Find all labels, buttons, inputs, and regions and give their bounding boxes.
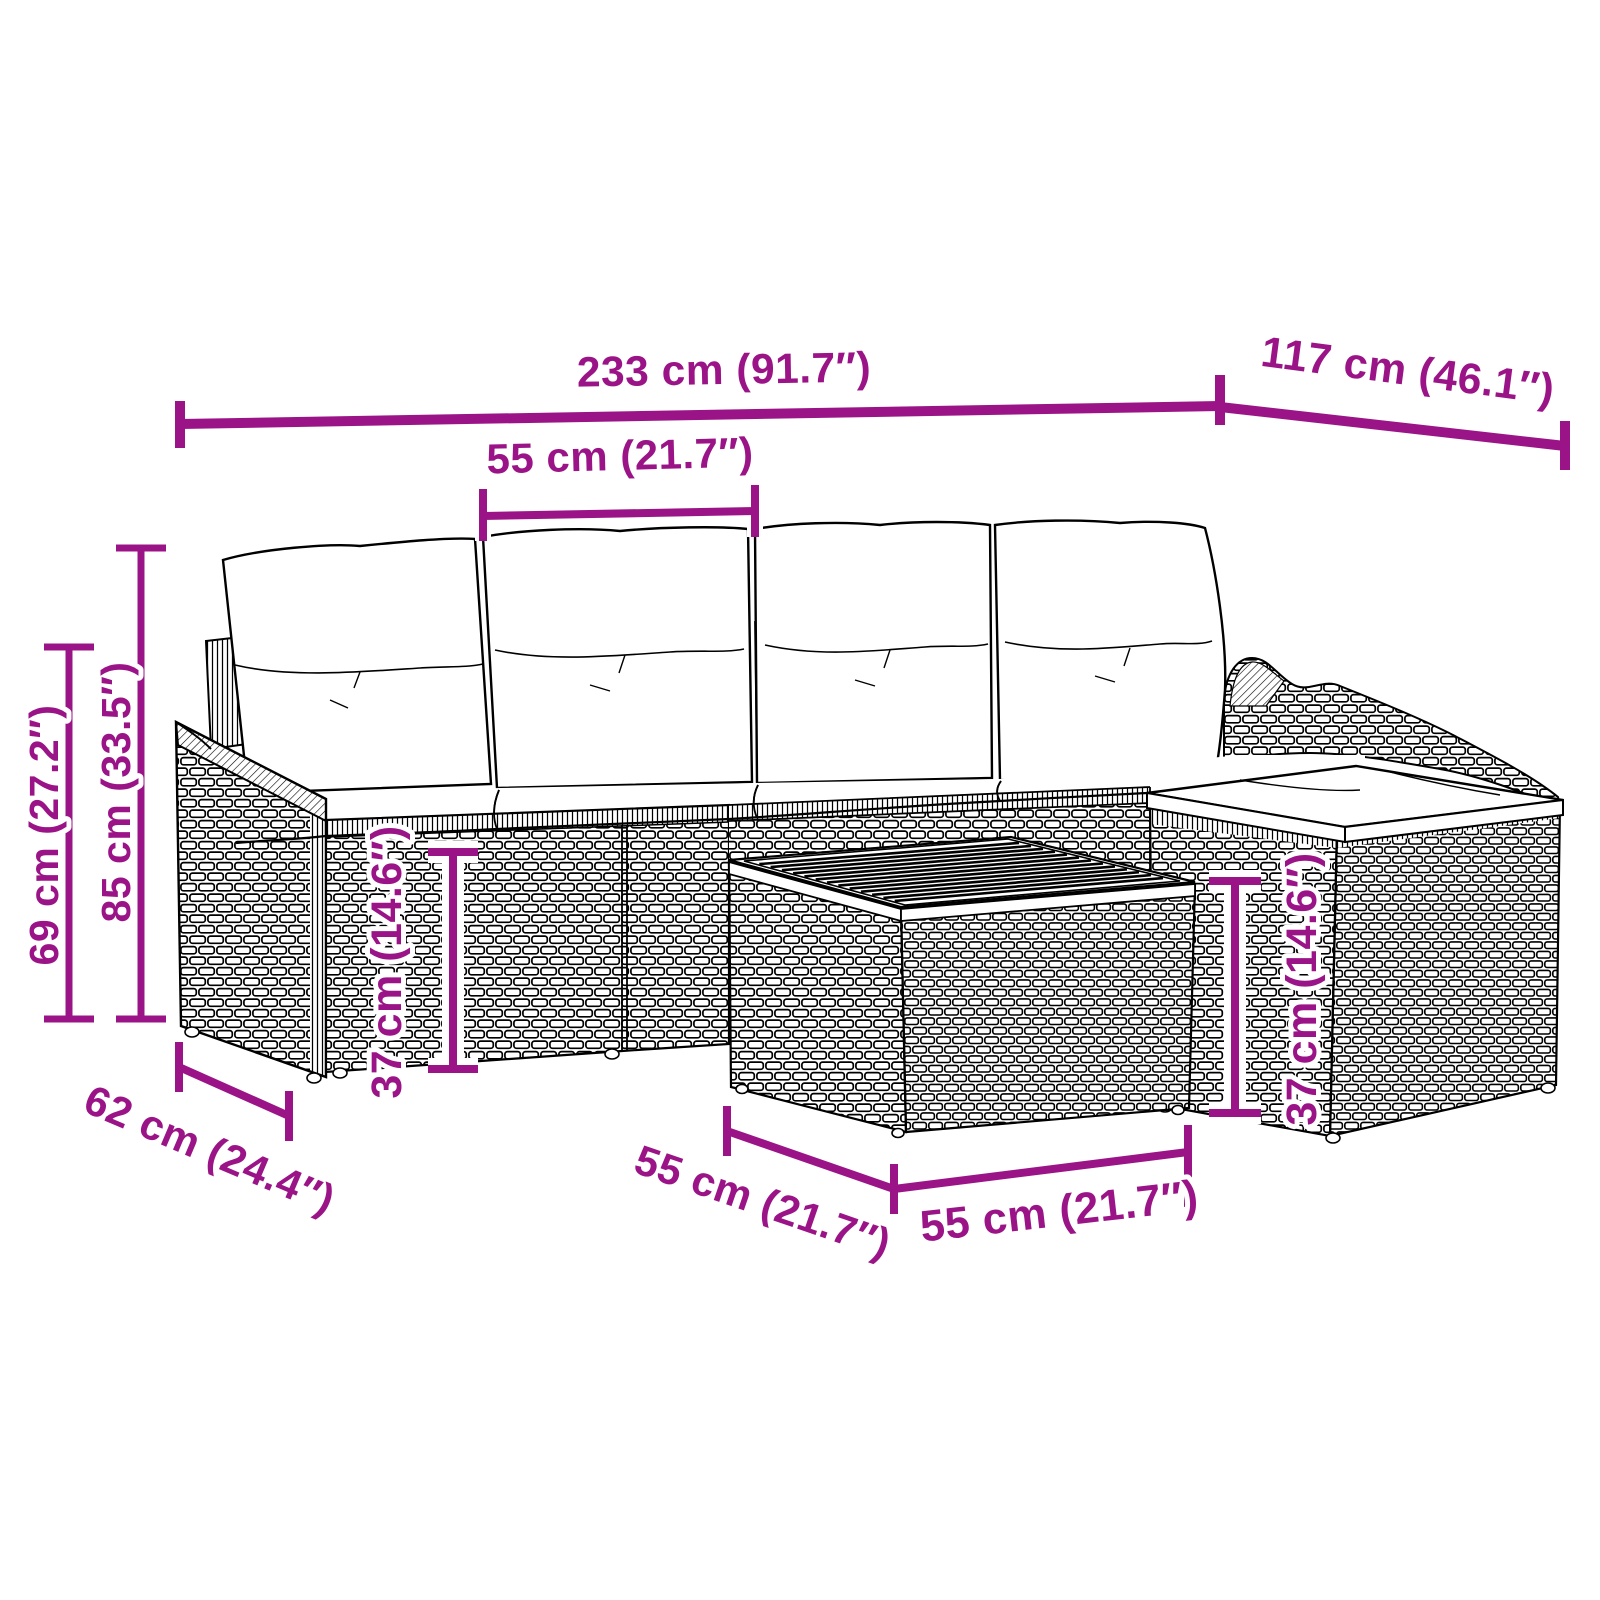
- svg-text:37 cm (14.6″): 37 cm (14.6″): [1278, 852, 1326, 1125]
- svg-text:37 cm (14.6″): 37 cm (14.6″): [363, 825, 411, 1098]
- svg-text:85 cm (33.5″): 85 cm (33.5″): [93, 662, 139, 923]
- svg-text:69 cm (27.2″): 69 cm (27.2″): [21, 705, 67, 966]
- svg-text:233 cm (91.7″): 233 cm (91.7″): [576, 344, 871, 396]
- svg-text:55 cm (21.7″): 55 cm (21.7″): [486, 429, 754, 483]
